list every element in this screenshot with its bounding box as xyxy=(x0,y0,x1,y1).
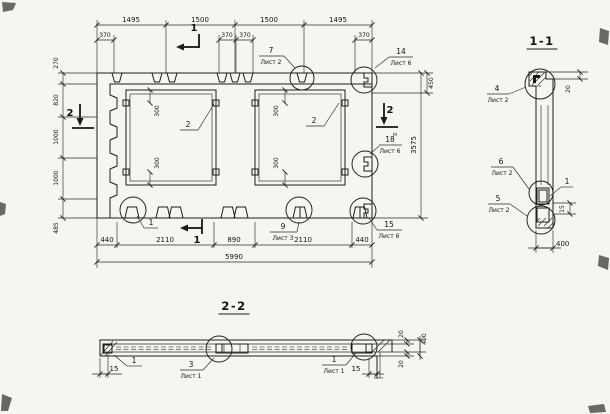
callout-sheet: Лист 6 xyxy=(380,148,401,155)
dim-label: 440 xyxy=(100,236,113,244)
dim-label: 15 xyxy=(352,365,361,373)
detail-circle xyxy=(527,206,555,234)
section-title: 2-2 xyxy=(221,299,246,313)
dim-label: 20 xyxy=(398,330,405,338)
section-marker-1-bottom: 1 xyxy=(180,219,202,246)
callout-sheet: Лист 6 xyxy=(379,233,400,240)
opening-leader-right: 2 xyxy=(306,103,339,126)
opening-left xyxy=(126,90,216,185)
dim-label: 890 xyxy=(227,236,240,244)
dim-label: 20 xyxy=(565,85,572,93)
section-marker-2-left: 2 xyxy=(67,104,94,128)
dim-label: 300 xyxy=(154,105,161,117)
dim-label: 370 xyxy=(239,32,251,39)
dim-label: 1000 xyxy=(53,170,60,185)
plan-view: 300 300 300 300 2 2 1495 1500 xyxy=(53,16,435,268)
callout-right: 18 Лист 6 xyxy=(370,135,402,155)
callout-sheet: Лист 1 xyxy=(181,373,202,380)
callout-6: 6 Лист 2 xyxy=(491,157,529,189)
section-1-1: 1-1 20 xyxy=(487,34,588,253)
callout-bottom-right: 15 Лист 6 xyxy=(369,218,402,240)
dim-label: 370 xyxy=(221,32,233,39)
detail-circle xyxy=(352,151,378,177)
dim-label: 370 xyxy=(358,32,370,39)
bottom-lugs xyxy=(125,207,367,218)
left-end-detail xyxy=(103,344,112,353)
panel-outline xyxy=(97,73,372,218)
section-2-2: 2-2 xyxy=(92,299,428,380)
opening-dims: 300 300 300 300 xyxy=(150,90,285,185)
dim-label: 15 xyxy=(559,205,566,213)
callout-number: 1 xyxy=(149,218,154,227)
dim-chain-top: 1495 1500 1500 1495 xyxy=(97,16,372,73)
detail-circle xyxy=(351,67,377,93)
callout-number: 1 xyxy=(565,177,570,186)
callout-number: 6 xyxy=(499,157,504,166)
section-marker-label: 2 xyxy=(67,108,74,119)
detail-circle xyxy=(120,197,146,223)
dim-label: 1500 xyxy=(260,16,278,24)
dim-label: 2110 xyxy=(294,236,312,244)
top-corbel xyxy=(529,72,553,110)
callout-number: 5 xyxy=(496,194,501,203)
section-marker-1-top: 1 xyxy=(176,23,199,51)
dim-label: 400 xyxy=(421,333,428,345)
section-title: 1-1 xyxy=(529,34,554,48)
callout-number: 9 xyxy=(281,222,286,231)
dim-label: 820 xyxy=(53,94,60,106)
dim-label: 1495 xyxy=(122,16,140,24)
left-keyed-edge xyxy=(110,84,117,218)
dim-label: 300 xyxy=(154,157,161,169)
embedded-item xyxy=(533,75,540,83)
callout-top-right: 14 Лист 6 xyxy=(375,47,413,68)
dim-label: 270 xyxy=(53,57,60,69)
engineering-drawing: 300 300 300 300 2 2 1495 1500 xyxy=(0,0,610,414)
callout-sheet: Лист 1 xyxy=(324,368,345,375)
callout-number: 4 xyxy=(495,84,500,93)
callout-number: 14 xyxy=(396,47,406,56)
callout-sheet: Лист 3 xyxy=(273,235,294,242)
dim-bottom: 400 xyxy=(528,230,569,253)
section-marker-label: 2 xyxy=(387,105,394,116)
dim-label: 1000 xyxy=(53,129,60,144)
dim-height-total: 3575 xyxy=(372,73,428,218)
callout-4: 4 Лист 2 xyxy=(487,84,526,104)
dim-label: 370 xyxy=(99,32,111,39)
dim-chain-370: 370 370 370 370 xyxy=(97,32,372,73)
dim-label: 3575 xyxy=(410,136,418,154)
dim-chain-bottom: 440 2110 890 2110 440 5990 xyxy=(97,218,372,268)
callout-mid: 3 Лист 1 xyxy=(180,358,214,380)
dim-label: 450 xyxy=(428,77,435,89)
dim-label: 15 xyxy=(110,365,119,373)
callout-number: 1 xyxy=(332,355,337,364)
callout-number: 1 xyxy=(132,356,137,365)
opening-leader-left: 2 xyxy=(180,104,214,130)
dim-label: 5990 xyxy=(225,253,243,261)
dim-mid: 15 xyxy=(553,203,576,214)
dim-label: 300 xyxy=(273,157,280,169)
detail-circle xyxy=(286,197,312,223)
section-marker-label: 1 xyxy=(194,235,201,246)
callout-5: 5 Лист 2 xyxy=(488,194,527,216)
drawing-sheet: 300 300 300 300 2 2 1495 1500 xyxy=(0,0,610,414)
callout-number: 15 xyxy=(384,220,394,229)
detail-circle xyxy=(290,66,314,90)
dim-chain-left: 270 820 1000 1000 485 xyxy=(53,57,97,234)
callout-sheet: Лист 2 xyxy=(261,59,282,66)
dim-label: 440 xyxy=(355,236,368,244)
dim-label: 300 xyxy=(273,105,280,117)
dim-450: 450 xyxy=(372,73,435,93)
section-marker-2-right: 2 н xyxy=(376,103,398,138)
dim-label: 400 xyxy=(556,240,569,248)
right-edge-notches xyxy=(364,73,372,218)
callout-number: 2 xyxy=(186,120,191,129)
callout-top: 7 Лист 2 xyxy=(259,46,295,68)
opening-right xyxy=(255,90,345,185)
dim-label: 1495 xyxy=(329,16,347,24)
dim-label: 485 xyxy=(53,222,60,234)
dim-thickness: 20 20 400 xyxy=(377,330,428,368)
callout-number: 7 xyxy=(269,46,274,55)
section-marker-label: 1 xyxy=(191,23,198,34)
callout-number: 3 xyxy=(189,360,194,369)
callout-number: 18 xyxy=(385,135,395,144)
callout-sheet: Лист 6 xyxy=(391,60,412,67)
dim-label: 2110 xyxy=(156,236,174,244)
callout-sheet: Лист 2 xyxy=(489,207,510,214)
dim-label: 20 xyxy=(398,360,405,368)
callout-sheet: Лист 2 xyxy=(492,170,513,177)
callout-number: 2 xyxy=(312,116,317,125)
callout-sheet: Лист 2 xyxy=(488,97,509,104)
dim-tail-15: 15 xyxy=(352,358,384,378)
top-edge-notches xyxy=(112,73,307,82)
